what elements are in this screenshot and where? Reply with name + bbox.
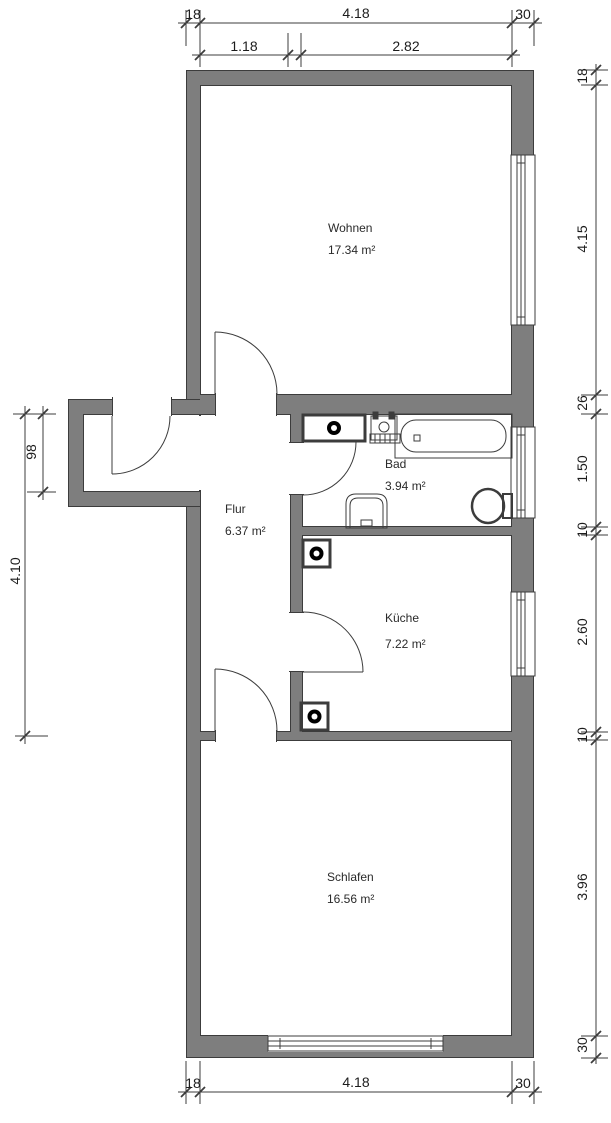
wohnen-window-opening — [510, 155, 536, 325]
flur-area: 6.37 m² — [225, 524, 266, 538]
dim-right-396: 3.96 — [574, 857, 590, 917]
dim-right-10a: 10 — [574, 500, 590, 560]
room-flur-corridor — [200, 414, 291, 732]
dim-right-26: 26 — [574, 373, 590, 433]
dim-bottom-18: 18 — [171, 1075, 215, 1091]
kueche-area: 7.22 m² — [385, 637, 426, 651]
entry-door-opening — [112, 397, 172, 416]
bad-area: 3.94 m² — [385, 479, 426, 493]
dim-right-10b: 10 — [574, 705, 590, 765]
schlafen-area: 16.56 m² — [327, 892, 374, 906]
kueche-window-opening — [510, 592, 536, 676]
room-schlafen — [200, 740, 512, 1036]
bad-window-opening — [510, 427, 536, 518]
dim-right-30: 30 — [574, 1015, 590, 1075]
dim-top-418: 4.18 — [326, 5, 386, 21]
dim-bottom-418: 4.18 — [326, 1074, 386, 1090]
wohnen-door-opening — [215, 393, 277, 416]
dim-top-118: 1.18 — [214, 38, 274, 54]
dim-top-30: 30 — [501, 6, 545, 22]
schlafen-door-opening — [215, 730, 277, 742]
dim-left-98: 98 — [23, 422, 39, 482]
floor-plan: Wohnen 17.34 m² Flur 6.37 m² Bad 3.94 m²… — [0, 0, 611, 1123]
room-flur-vestibule — [83, 414, 200, 492]
wohnen-area: 17.34 m² — [328, 243, 375, 257]
wohnen-label: Wohnen — [328, 221, 372, 235]
dim-top-18: 18 — [171, 6, 215, 22]
dim-right-150: 1.50 — [574, 439, 590, 499]
dim-top-282: 2.82 — [376, 38, 436, 54]
flur-join-patch — [197, 416, 203, 490]
dim-bottom-30: 30 — [501, 1075, 545, 1091]
room-bad — [302, 414, 512, 527]
kueche-label: Küche — [385, 611, 419, 625]
flur-label: Flur — [225, 502, 246, 516]
bad-label: Bad — [385, 457, 406, 471]
dim-left-410: 4.10 — [7, 541, 23, 601]
room-wohnen — [200, 85, 512, 395]
dim-right-18: 18 — [574, 46, 590, 106]
schlafen-label: Schlafen — [327, 870, 374, 884]
bad-door-opening — [289, 442, 304, 495]
kueche-door-opening — [289, 612, 304, 672]
schlafen-window-opening — [268, 1035, 443, 1052]
dim-right-415: 4.15 — [574, 209, 590, 269]
dim-right-260: 2.60 — [574, 602, 590, 662]
room-kueche — [302, 535, 512, 732]
